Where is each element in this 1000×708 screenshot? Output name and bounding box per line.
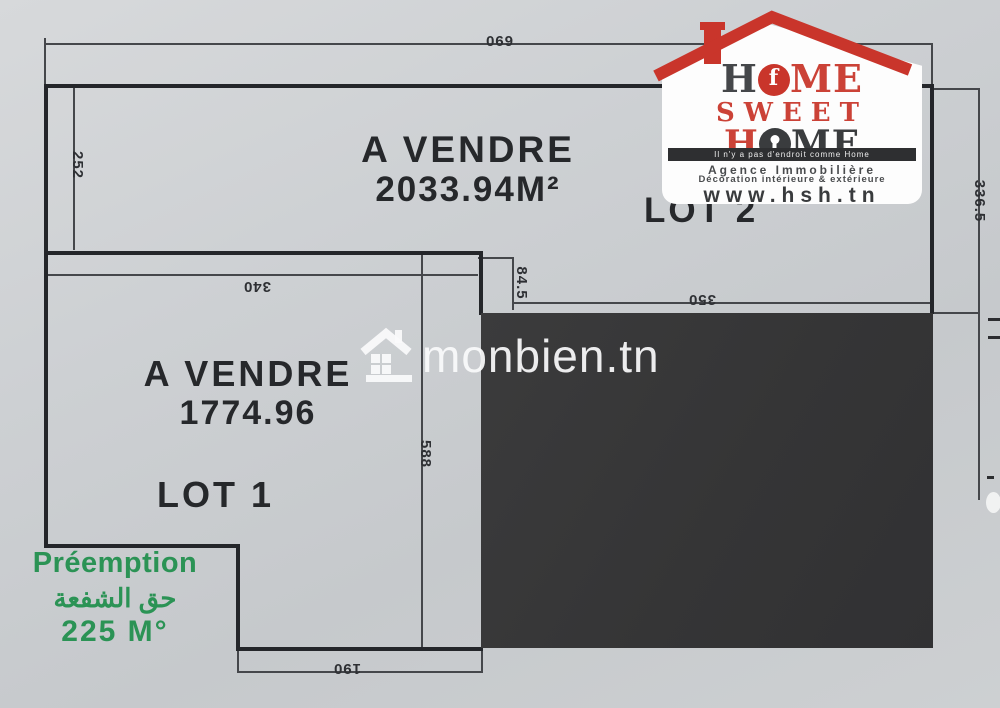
edge-tick xyxy=(988,336,1000,339)
lots-boundary-left xyxy=(44,84,48,548)
keyhole-icon xyxy=(770,135,779,144)
edge-tick xyxy=(987,476,994,479)
dim-label-340: 340 xyxy=(226,276,288,298)
logo-home-line1: HfME xyxy=(662,60,922,98)
watermark: monbien.tn xyxy=(358,322,660,390)
lot2-a-vendre: A VENDRE xyxy=(320,131,616,168)
boundary-top-right-extension xyxy=(933,88,980,90)
logo-tagline: Il n'y a pas d'endroit comme Home xyxy=(668,148,916,161)
logo-website: www.hsh.tn xyxy=(662,184,922,208)
lot2-sale-text: A VENDRE 2033.94M² xyxy=(320,131,616,207)
land-survey-plan: 690 252 340 84.5 350 336.5 588 190 A VEN… xyxy=(0,0,1000,708)
connector-line-step xyxy=(478,257,514,259)
lot1-a-vendre: A VENDRE xyxy=(112,356,384,392)
logo-h1: H xyxy=(721,56,758,101)
extension-line-top-left xyxy=(44,38,46,87)
lot1-sale-text: A VENDRE 1774.96 xyxy=(112,356,384,430)
door-icon: f xyxy=(758,64,790,96)
preemption-title: Préemption xyxy=(8,548,222,580)
dim-label-336-5: 336.5 xyxy=(967,173,993,229)
scan-artifact xyxy=(986,492,1000,513)
lot2-area: 2033.94M² xyxy=(320,172,616,207)
boundary-line-right-336-5 xyxy=(978,90,980,500)
extension-line-190-left xyxy=(237,650,239,672)
dim-label-190: 190 xyxy=(316,658,378,680)
logo-me1: ME xyxy=(790,56,863,101)
preemption-area: 225 M° xyxy=(8,615,222,648)
lot1-boundary-bottom xyxy=(236,647,483,651)
dim-label-252: 252 xyxy=(65,145,91,185)
dim-label-84-5: 84.5 xyxy=(509,261,535,305)
preemption-notch-side xyxy=(236,544,240,651)
watermark-text: monbien.tn xyxy=(422,329,660,383)
lot1-boundary-right-upper xyxy=(479,251,483,315)
preemption-arabic: حق الشفعة xyxy=(8,584,222,613)
lot1-area: 1774.96 xyxy=(112,396,384,430)
edge-tick xyxy=(988,318,1000,321)
lot1-boundary-top xyxy=(44,251,483,255)
door-letter: f xyxy=(758,67,790,89)
house-icon xyxy=(358,325,414,388)
boundary-jog-right xyxy=(933,312,980,314)
dim-label-588: 588 xyxy=(413,434,439,474)
dim-label-690: 690 xyxy=(468,30,530,52)
extension-line-190-right xyxy=(481,648,483,673)
agency-logo: HfME SWEET HME Il n'y a pas d'endroit co… xyxy=(640,6,935,216)
lot1-label: LOT 1 xyxy=(157,474,274,516)
preemption-note: Préemption حق الشفعة 225 M° xyxy=(8,548,222,648)
dim-label-350: 350 xyxy=(671,289,733,311)
